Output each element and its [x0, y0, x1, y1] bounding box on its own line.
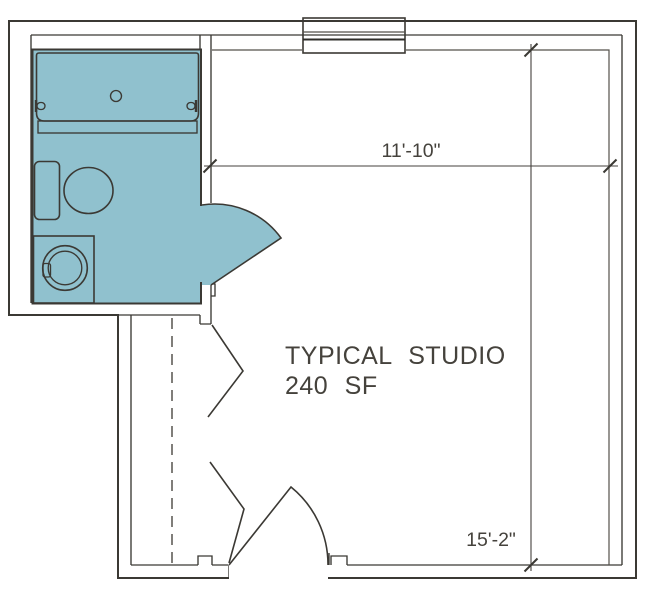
floor-plan-drawing: 11'-10" 15'-2" TYPICAL STUDIO 240 SF	[0, 0, 650, 600]
dim-horizontal-label: 11'-10"	[381, 140, 440, 162]
dim-vertical-label: 15'-2"	[466, 529, 516, 551]
floor-plan: 11'-10" 15'-2" TYPICAL STUDIO 240 SF	[0, 0, 650, 600]
bathroom-area	[33, 50, 202, 304]
room-area: 240 SF	[285, 372, 378, 400]
room-title: TYPICAL STUDIO	[285, 342, 506, 370]
